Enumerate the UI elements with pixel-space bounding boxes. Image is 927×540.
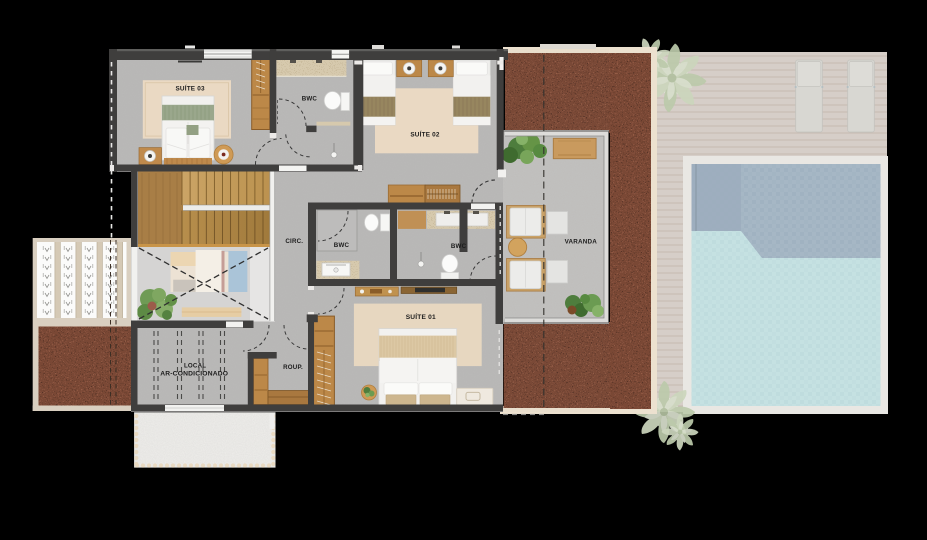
svg-text:ROUP.: ROUP. [283, 364, 303, 371]
svg-text:SUÍTE 01: SUÍTE 01 [406, 312, 436, 321]
svg-text:BWC: BWC [451, 243, 467, 250]
svg-text:SUÍTE 03: SUÍTE 03 [175, 84, 205, 93]
svg-text:BWC: BWC [334, 242, 350, 249]
svg-text:LOCAL: LOCAL [184, 363, 206, 370]
svg-text:AR-CONDICIONADO: AR-CONDICIONADO [160, 370, 228, 377]
svg-text:VARANDA: VARANDA [565, 238, 598, 245]
svg-text:BWC: BWC [302, 96, 318, 103]
svg-text:CIRC.: CIRC. [285, 238, 303, 245]
svg-text:SUÍTE 02: SUÍTE 02 [410, 130, 440, 139]
